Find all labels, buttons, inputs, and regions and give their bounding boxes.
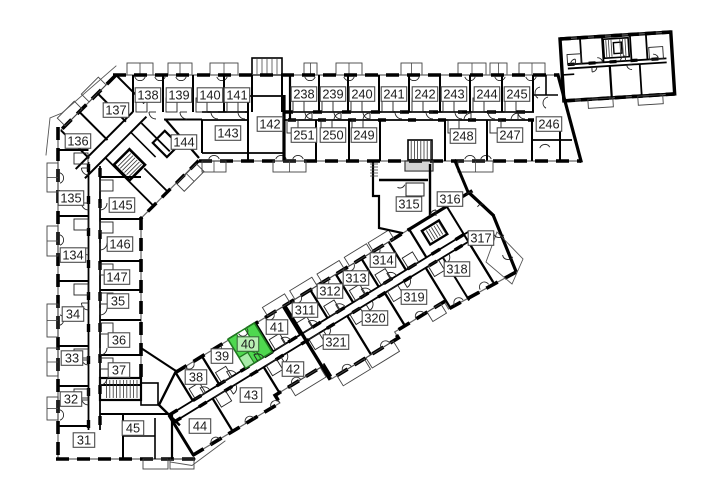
svg-text:39: 39 xyxy=(215,349,229,364)
svg-text:317: 317 xyxy=(470,231,491,246)
svg-text:146: 146 xyxy=(109,237,130,252)
svg-text:32: 32 xyxy=(64,392,78,407)
svg-text:139: 139 xyxy=(168,88,189,103)
svg-text:249: 249 xyxy=(353,128,374,143)
svg-text:315: 315 xyxy=(398,197,419,212)
svg-text:36: 36 xyxy=(112,333,126,348)
svg-text:239: 239 xyxy=(322,87,343,102)
svg-text:246: 246 xyxy=(538,117,559,132)
svg-text:38: 38 xyxy=(189,370,203,385)
svg-text:238: 238 xyxy=(293,87,314,102)
svg-text:143: 143 xyxy=(217,126,238,141)
svg-text:240: 240 xyxy=(351,87,372,102)
svg-text:244: 244 xyxy=(476,87,497,102)
svg-text:33: 33 xyxy=(65,351,79,366)
svg-text:242: 242 xyxy=(414,87,435,102)
svg-text:321: 321 xyxy=(325,335,346,350)
svg-text:241: 241 xyxy=(383,87,404,102)
svg-text:37: 37 xyxy=(112,363,126,378)
svg-text:44: 44 xyxy=(193,419,207,434)
svg-text:247: 247 xyxy=(499,128,520,143)
svg-text:145: 145 xyxy=(111,198,132,213)
svg-text:243: 243 xyxy=(443,87,464,102)
svg-text:134: 134 xyxy=(62,248,83,263)
svg-text:318: 318 xyxy=(446,262,467,277)
svg-text:138: 138 xyxy=(137,88,158,103)
svg-text:40: 40 xyxy=(241,337,255,352)
svg-text:31: 31 xyxy=(77,433,91,448)
svg-text:144: 144 xyxy=(173,135,194,150)
svg-text:45: 45 xyxy=(126,421,140,436)
svg-text:137: 137 xyxy=(105,103,126,118)
svg-text:248: 248 xyxy=(452,129,473,144)
svg-text:313: 313 xyxy=(345,271,366,286)
svg-text:140: 140 xyxy=(199,88,220,103)
svg-text:142: 142 xyxy=(259,117,280,132)
svg-text:245: 245 xyxy=(506,87,527,102)
svg-text:311: 311 xyxy=(295,303,315,318)
svg-text:320: 320 xyxy=(364,311,385,326)
svg-text:135: 135 xyxy=(60,191,81,206)
svg-text:314: 314 xyxy=(372,253,393,268)
svg-text:34: 34 xyxy=(66,307,80,322)
svg-text:312: 312 xyxy=(319,284,340,299)
svg-text:35: 35 xyxy=(111,294,125,309)
svg-text:250: 250 xyxy=(322,128,343,143)
svg-text:136: 136 xyxy=(67,134,88,149)
svg-text:251: 251 xyxy=(293,128,314,143)
svg-text:316: 316 xyxy=(439,192,460,207)
svg-text:41: 41 xyxy=(270,320,284,335)
svg-text:319: 319 xyxy=(403,290,424,305)
svg-text:42: 42 xyxy=(286,362,300,377)
svg-text:43: 43 xyxy=(244,388,258,403)
svg-text:141: 141 xyxy=(226,88,247,103)
svg-text:147: 147 xyxy=(106,270,127,285)
